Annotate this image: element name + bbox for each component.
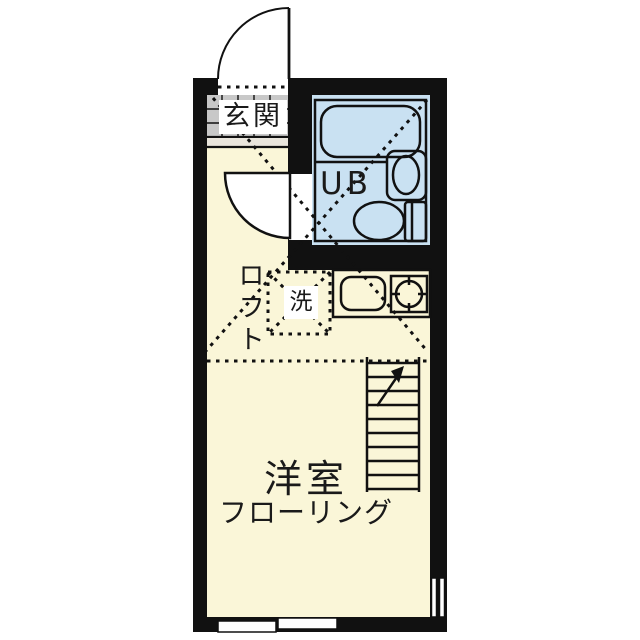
unit-bath-label: UB: [314, 166, 378, 202]
loft-label: ロフト: [229, 261, 268, 357]
wall-left: [193, 78, 207, 632]
bottom-window-pane-2: [278, 618, 337, 629]
bathroom-door-opening: [289, 174, 312, 240]
right-window-pane-2: [440, 578, 445, 617]
bottom-window-pane-1: [218, 621, 276, 632]
entrance-step: [207, 138, 288, 147]
entrance-door-swing-arc: [218, 8, 289, 79]
entrance-label: 玄関: [219, 100, 287, 134]
wall-bath-bottom: [288, 245, 430, 270]
wall-right: [430, 78, 447, 632]
laundry-label: 洗: [284, 286, 318, 319]
right-window-pane-1: [432, 578, 437, 617]
flooring-label: フローリング: [211, 491, 401, 531]
floor-plan: 玄関 UB ロフト 洗 洋室 フローリング: [0, 0, 640, 640]
floor-plan-drawing: [0, 0, 640, 640]
